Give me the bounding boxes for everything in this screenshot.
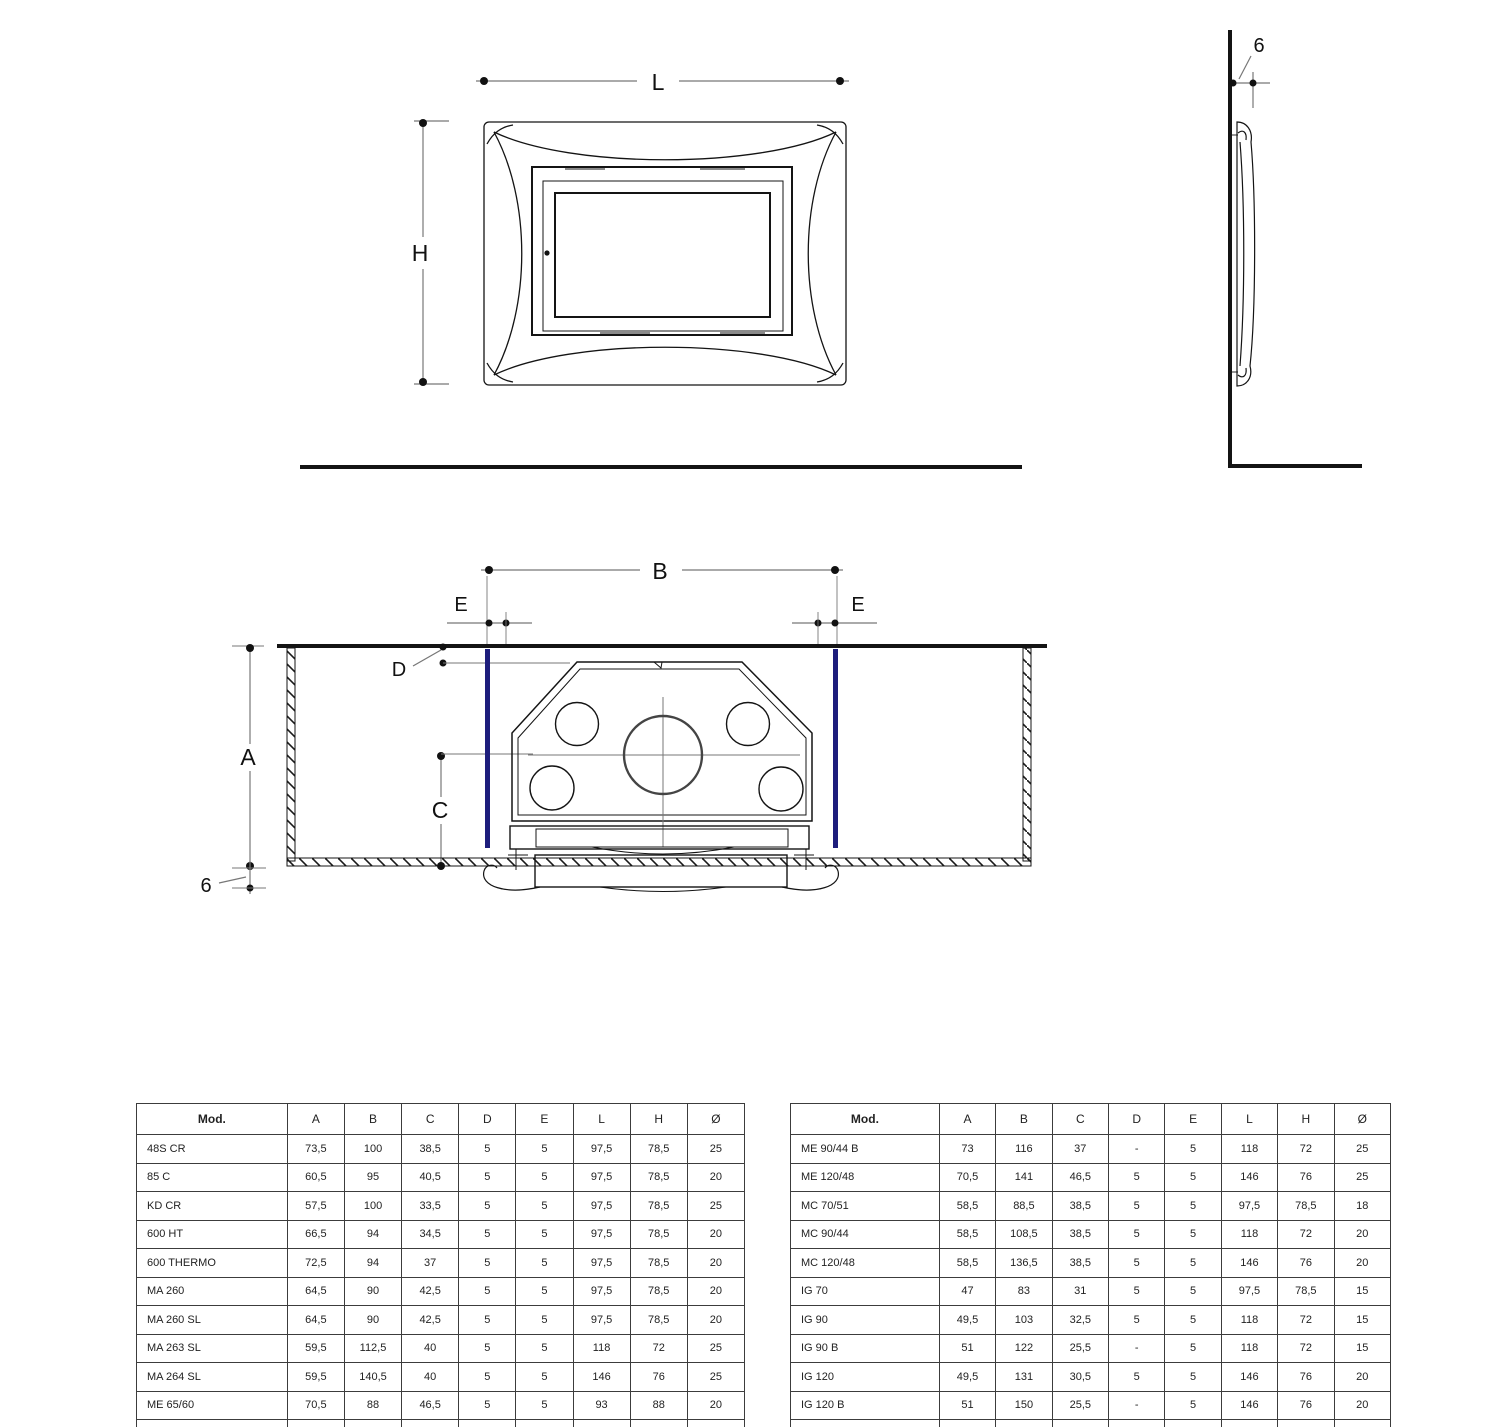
value-cell: 25: [687, 1192, 744, 1221]
value-cell: -: [1108, 1135, 1164, 1164]
value-cell: 5: [459, 1277, 516, 1306]
model-cell: MA 263 SL: [137, 1334, 288, 1363]
value-cell: 5: [1165, 1363, 1221, 1392]
value-cell: 70,5: [939, 1163, 995, 1192]
value-cell: 131: [996, 1363, 1052, 1392]
value-cell: 5: [1165, 1192, 1221, 1221]
value-cell: 54 / 69 *: [1052, 1420, 1108, 1427]
frame-edge-reference-line-left: [485, 649, 490, 848]
value-cell: 49,5: [939, 1306, 995, 1335]
value-cell: 25: [687, 1135, 744, 1164]
value-cell: 88,5: [996, 1192, 1052, 1221]
value-cell: 64,5: [287, 1277, 344, 1306]
value-cell: 5: [516, 1192, 573, 1221]
value-cell: 118: [1221, 1334, 1277, 1363]
column-header-d: D: [1108, 1104, 1164, 1135]
value-cell: 88: [344, 1391, 401, 1420]
value-cell: 42,5: [402, 1306, 459, 1335]
value-cell: 118: [1221, 1135, 1277, 1164]
value-cell: 72: [1278, 1220, 1334, 1249]
vent-circle-top-right: [727, 703, 770, 746]
value-cell: 78,5: [630, 1220, 687, 1249]
value-cell: 78,5: [1278, 1192, 1334, 1221]
dimension-E-left: [447, 612, 532, 644]
value-cell: 5: [516, 1135, 573, 1164]
model-cell: ME 120/48: [791, 1163, 940, 1192]
table-row: MC 70/5158,588,538,55597,578,518: [791, 1192, 1391, 1221]
value-cell: 38,5: [402, 1135, 459, 1164]
value-cell: 5: [516, 1391, 573, 1420]
model-cell: MA 260 SL: [137, 1306, 288, 1335]
table-row: MC 90/4458,5108,538,5551187220: [791, 1220, 1391, 1249]
value-cell: 31: [1052, 1277, 1108, 1306]
model-cell: ME 90/44 B: [791, 1135, 940, 1164]
value-cell: 73,5: [287, 1135, 344, 1164]
value-cell: 5: [1165, 1163, 1221, 1192]
value-cell: 118: [573, 1334, 630, 1363]
value-cell: 5: [459, 1363, 516, 1392]
value-cell: 5: [1108, 1363, 1164, 1392]
model-cell: MA 264 SL: [137, 1363, 288, 1392]
model-cell: IG 70: [791, 1277, 940, 1306]
value-cell: 65 / 79 *: [939, 1420, 995, 1427]
table-row: IG 90 B5112225,5-51187215: [791, 1334, 1391, 1363]
model-cell: ME 65/60: [137, 1391, 288, 1420]
value-cell: 51: [939, 1391, 995, 1420]
front-height-label: H: [412, 240, 429, 266]
column-header-b: B: [344, 1104, 401, 1135]
door-handle-dot: [544, 250, 549, 255]
value-cell: 83: [996, 1277, 1052, 1306]
value-cell: 5: [459, 1306, 516, 1335]
value-cell: 78,5: [630, 1249, 687, 1278]
value-cell: 5: [1165, 1420, 1221, 1427]
model-cell: IG 120 B: [791, 1391, 940, 1420]
table-row: 85 C60,59540,55597,578,520: [137, 1163, 745, 1192]
value-cell: 94: [344, 1249, 401, 1278]
value-cell: 5: [1108, 1249, 1164, 1278]
value-cell: 72: [1278, 1135, 1334, 1164]
value-cell: 58,5: [939, 1249, 995, 1278]
value-cell: 146: [573, 1363, 630, 1392]
technical-drawing-page: L H: [0, 0, 1500, 1427]
value-cell: 90: [344, 1277, 401, 1306]
value-cell: 5: [1108, 1420, 1164, 1427]
value-cell: 33,5: [402, 1192, 459, 1221]
value-cell: 70,5: [287, 1391, 344, 1420]
value-cell: 46,5: [402, 1420, 459, 1427]
table-row: 600 THERMO72,594375597,578,520: [137, 1249, 745, 1278]
value-cell: 5: [1165, 1249, 1221, 1278]
table-row: IG 120 B5115025,5-51467620: [791, 1391, 1391, 1420]
value-cell: 5: [1165, 1334, 1221, 1363]
value-cell: 97,5: [573, 1249, 630, 1278]
section-C-label: C: [432, 797, 449, 823]
value-cell: 5: [516, 1277, 573, 1306]
model-cell: IG 90: [791, 1306, 940, 1335]
value-cell: 97,5: [573, 1420, 630, 1427]
value-cell: 20: [687, 1277, 744, 1306]
value-cell: -: [1108, 1391, 1164, 1420]
value-cell: 20: [687, 1420, 744, 1427]
value-cell: 49,5: [939, 1363, 995, 1392]
value-cell: 76: [1278, 1249, 1334, 1278]
value-cell: 5: [1165, 1391, 1221, 1420]
value-cell: 136,5: [996, 1249, 1052, 1278]
side-frame-profile: [1231, 122, 1255, 386]
column-header-e: E: [516, 1104, 573, 1135]
value-cell: 97,5: [573, 1277, 630, 1306]
frame-edge-reference-line-right: [833, 649, 838, 848]
value-cell: 122: [996, 1334, 1052, 1363]
model-cell: 600 HT: [137, 1220, 288, 1249]
column-header-mod: Mod.: [137, 1104, 288, 1135]
table-row: ME 90/44 B7311637-51187225: [791, 1135, 1391, 1164]
column-header-c: C: [402, 1104, 459, 1135]
value-cell: 20: [1334, 1363, 1390, 1392]
value-cell: 97,5: [573, 1163, 630, 1192]
value-cell: 34,5: [402, 1220, 459, 1249]
value-cell: 5: [459, 1249, 516, 1278]
column-header-a: A: [939, 1104, 995, 1135]
table-row: IG 12049,513130,5551467620: [791, 1363, 1391, 1392]
value-cell: 57,5: [287, 1192, 344, 1221]
value-cell: 5: [459, 1192, 516, 1221]
value-cell: 72,5: [287, 1249, 344, 1278]
section-view-drawing: B E E D: [200, 558, 1047, 897]
value-cell: 94: [344, 1220, 401, 1249]
model-cell: KD CR: [137, 1192, 288, 1221]
value-cell: 25: [1334, 1135, 1390, 1164]
table-row: 48S CR73,510038,55597,578,525: [137, 1135, 745, 1164]
front-width-label: L: [652, 69, 665, 95]
value-cell: 42,5: [402, 1277, 459, 1306]
value-cell: 97,5: [1221, 1192, 1277, 1221]
value-cell: 40: [402, 1334, 459, 1363]
value-cell: 5: [1108, 1192, 1164, 1221]
column-header-diam: Ø: [687, 1104, 744, 1135]
model-cell: ME 70/51: [137, 1420, 288, 1427]
column-header-e: E: [1165, 1104, 1221, 1135]
value-cell: 20: [1334, 1220, 1390, 1249]
value-cell: 97,5: [573, 1135, 630, 1164]
value-cell: 146: [1221, 1163, 1277, 1192]
value-cell: 25,5: [1052, 1334, 1108, 1363]
value-cell: 64,5: [287, 1306, 344, 1335]
value-cell: 78,5: [630, 1306, 687, 1335]
value-cell: 5: [1108, 1220, 1164, 1249]
value-cell: 5: [459, 1391, 516, 1420]
section-6-label: 6: [200, 875, 211, 897]
section-A-label: A: [240, 744, 256, 770]
value-cell: 73: [939, 1135, 995, 1164]
value-cell: 46,5: [1052, 1163, 1108, 1192]
value-cell: 5: [516, 1363, 573, 1392]
value-cell: 95: [344, 1163, 401, 1192]
side-view-drawing: 6: [1228, 30, 1362, 466]
value-cell: 40,5: [402, 1163, 459, 1192]
value-cell: 93: [573, 1391, 630, 1420]
value-cell: 5: [1108, 1163, 1164, 1192]
value-cell: 76: [630, 1363, 687, 1392]
insert-body-plan: [512, 662, 812, 847]
vent-circle-top-left: [556, 703, 599, 746]
value-cell: 5: [516, 1306, 573, 1335]
value-cell: 78,5: [630, 1277, 687, 1306]
table-row: MC 120/4858,5136,538,5551467620: [791, 1249, 1391, 1278]
value-cell: 88: [630, 1391, 687, 1420]
value-cell: 141: [996, 1163, 1052, 1192]
model-cell: MC 90/44: [791, 1220, 940, 1249]
value-cell: 146: [1221, 1249, 1277, 1278]
value-cell: 38,5: [1052, 1249, 1108, 1278]
value-cell: 51: [939, 1334, 995, 1363]
value-cell: 72: [630, 1334, 687, 1363]
value-cell: 108,5: [996, 1220, 1052, 1249]
column-header-h: H: [1278, 1104, 1334, 1135]
value-cell: 59,5: [287, 1363, 344, 1392]
value-cell: 5: [516, 1249, 573, 1278]
value-cell: 38,5: [1052, 1220, 1108, 1249]
value-cell: 5: [1165, 1277, 1221, 1306]
value-cell: 15: [1334, 1306, 1390, 1335]
table-row: 600 HT66,59434,55597,578,520: [137, 1220, 745, 1249]
value-cell: 15: [1334, 1334, 1390, 1363]
value-cell: 100: [344, 1135, 401, 1164]
value-cell: 72: [1278, 1306, 1334, 1335]
value-cell: 100: [344, 1192, 401, 1221]
value-cell: 5: [1165, 1306, 1221, 1335]
section-E-right-label: E: [851, 594, 864, 616]
value-cell: 78,5: [1278, 1277, 1334, 1306]
dimension-6-side: [1230, 56, 1271, 108]
table-row: MA 26064,59042,55597,578,520: [137, 1277, 745, 1306]
value-cell: 37: [402, 1249, 459, 1278]
table-header-row: Mod.ABCDELHØ: [791, 1104, 1391, 1135]
column-header-h: H: [630, 1104, 687, 1135]
value-cell: 5: [1165, 1135, 1221, 1164]
value-cell: 20: [687, 1306, 744, 1335]
model-cell: MP 973: [791, 1420, 940, 1427]
value-cell: 140,5: [344, 1363, 401, 1392]
value-cell: 20: [687, 1249, 744, 1278]
model-cell: MC 70/51: [791, 1192, 940, 1221]
value-cell: 25: [687, 1334, 744, 1363]
value-cell: 5: [516, 1163, 573, 1192]
value-cell: 25,5: [1052, 1391, 1108, 1420]
value-cell: 97,5: [573, 1306, 630, 1335]
section-E-left-label: E: [454, 594, 467, 616]
value-cell: 112,5: [344, 1334, 401, 1363]
table-row: KD CR57,510033,55597,578,525: [137, 1192, 745, 1221]
value-cell: 118: [1221, 1220, 1277, 1249]
value-cell: 25: [1334, 1163, 1390, 1192]
value-cell: 97,5: [573, 1220, 630, 1249]
value-cell: 46,5: [402, 1391, 459, 1420]
table-row: MA 263 SL59,5112,540551187225: [137, 1334, 745, 1363]
value-cell: 118: [1221, 1306, 1277, 1335]
section-B-label: B: [652, 558, 667, 584]
table-row: ME 70/5170,59246,55597,578,520: [137, 1420, 745, 1427]
value-cell: 104: [996, 1420, 1052, 1427]
column-header-l: L: [573, 1104, 630, 1135]
value-cell: 90: [344, 1306, 401, 1335]
value-cell: 15: [1334, 1277, 1390, 1306]
model-cell: 85 C: [137, 1163, 288, 1192]
value-cell: 78,5: [630, 1192, 687, 1221]
table-row: IG 9049,510332,5551187215: [791, 1306, 1391, 1335]
vent-circle-bottom-right: [759, 767, 803, 811]
value-cell: 40: [402, 1363, 459, 1392]
value-cell: 116: [996, 1135, 1052, 1164]
value-cell: 5: [516, 1334, 573, 1363]
value-cell: 103: [996, 1306, 1052, 1335]
value-cell: 8: [1334, 1420, 1390, 1427]
table-row: ME 120/4870,514146,5551467625: [791, 1163, 1391, 1192]
value-cell: 5: [459, 1163, 516, 1192]
column-header-b: B: [996, 1104, 1052, 1135]
value-cell: 150: [996, 1391, 1052, 1420]
value-cell: 5: [516, 1420, 573, 1427]
value-cell: 70,5: [287, 1420, 344, 1427]
value-cell: 20: [687, 1163, 744, 1192]
value-cell: 5: [459, 1420, 516, 1427]
table-row: MA 264 SL59,5140,540551467625: [137, 1363, 745, 1392]
table-row: IG 704783315597,578,515: [791, 1277, 1391, 1306]
value-cell: 146: [1221, 1391, 1277, 1420]
column-header-mod: Mod.: [791, 1104, 940, 1135]
value-cell: 66,5: [287, 1220, 344, 1249]
spec-table-right: Mod.ABCDELHØ ME 90/44 B7311637-51187225M…: [790, 1103, 1391, 1427]
value-cell: 5: [459, 1334, 516, 1363]
table-row: MP 97365 / 79 *10454 / 69 *5593888: [791, 1420, 1391, 1427]
value-cell: 78,5: [630, 1135, 687, 1164]
value-cell: 37: [1052, 1135, 1108, 1164]
value-cell: 59,5: [287, 1334, 344, 1363]
value-cell: 32,5: [1052, 1306, 1108, 1335]
model-cell: IG 90 B: [791, 1334, 940, 1363]
value-cell: 97,5: [573, 1192, 630, 1221]
value-cell: 92: [344, 1420, 401, 1427]
value-cell: 78,5: [630, 1163, 687, 1192]
model-cell: 600 THERMO: [137, 1249, 288, 1278]
value-cell: 93: [1221, 1420, 1277, 1427]
value-cell: 58,5: [939, 1192, 995, 1221]
dimension-E-right: [792, 612, 877, 644]
value-cell: 20: [687, 1391, 744, 1420]
column-header-d: D: [459, 1104, 516, 1135]
value-cell: -: [1108, 1334, 1164, 1363]
value-cell: 76: [1278, 1391, 1334, 1420]
model-cell: MA 260: [137, 1277, 288, 1306]
model-cell: MC 120/48: [791, 1249, 940, 1278]
vent-circle-bottom-left: [530, 766, 574, 810]
section-D-label: D: [392, 659, 406, 681]
column-header-diam: Ø: [1334, 1104, 1390, 1135]
value-cell: 5: [1108, 1306, 1164, 1335]
value-cell: 60,5: [287, 1163, 344, 1192]
value-cell: 5: [516, 1220, 573, 1249]
value-cell: 72: [1278, 1334, 1334, 1363]
value-cell: 58,5: [939, 1220, 995, 1249]
value-cell: 146: [1221, 1363, 1277, 1392]
value-cell: 5: [459, 1135, 516, 1164]
front-view-drawing: L H: [300, 69, 1022, 467]
value-cell: 76: [1278, 1163, 1334, 1192]
value-cell: 5: [1108, 1277, 1164, 1306]
value-cell: 25: [687, 1363, 744, 1392]
side-thickness-label: 6: [1253, 35, 1264, 57]
column-header-l: L: [1221, 1104, 1277, 1135]
value-cell: 30,5: [1052, 1363, 1108, 1392]
model-cell: 48S CR: [137, 1135, 288, 1164]
value-cell: 47: [939, 1277, 995, 1306]
value-cell: 76: [1278, 1363, 1334, 1392]
value-cell: 97,5: [1221, 1277, 1277, 1306]
value-cell: 78,5: [630, 1420, 687, 1427]
front-door: [532, 167, 792, 335]
value-cell: 20: [687, 1220, 744, 1249]
value-cell: 5: [1165, 1220, 1221, 1249]
column-header-a: A: [287, 1104, 344, 1135]
table-row: MA 260 SL64,59042,55597,578,520: [137, 1306, 745, 1335]
model-cell: IG 120: [791, 1363, 940, 1392]
value-cell: 18: [1334, 1192, 1390, 1221]
table-row: ME 65/6070,58846,555938820: [137, 1391, 745, 1420]
value-cell: 38,5: [1052, 1192, 1108, 1221]
value-cell: 5: [459, 1220, 516, 1249]
spec-table-left: Mod.ABCDELHØ 48S CR73,510038,55597,578,5…: [136, 1103, 745, 1427]
value-cell: 88: [1278, 1420, 1334, 1427]
value-cell: 20: [1334, 1391, 1390, 1420]
dimension-6-section: [219, 861, 266, 894]
column-header-c: C: [1052, 1104, 1108, 1135]
value-cell: 20: [1334, 1249, 1390, 1278]
table-header-row: Mod.ABCDELHØ: [137, 1104, 745, 1135]
